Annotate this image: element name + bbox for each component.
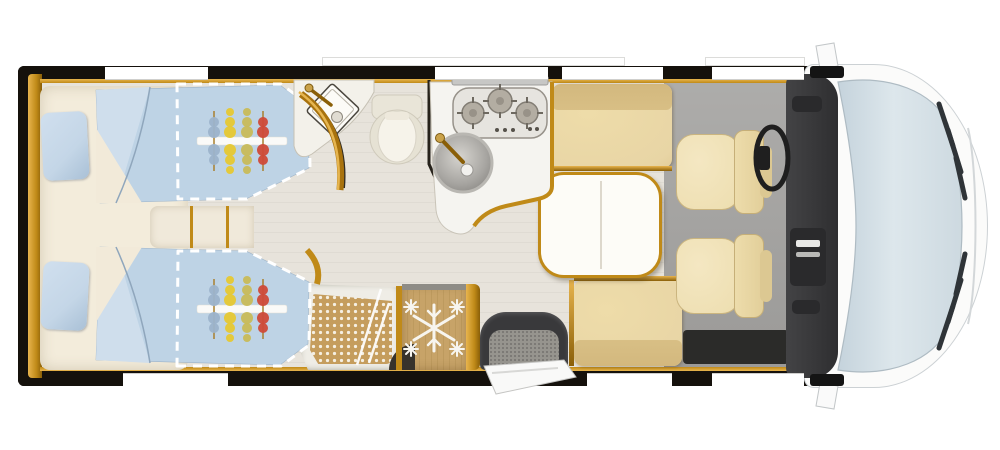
seat-cushion [676, 238, 740, 314]
bench-backrest [552, 84, 672, 110]
dinette-table [538, 172, 662, 278]
pillow-top-bed [40, 111, 89, 181]
console-slot [796, 240, 820, 247]
dash-vent [792, 96, 822, 112]
cab-storage-step [683, 330, 789, 364]
driver-seat [676, 130, 772, 214]
refrigerator-wood-panel [466, 284, 480, 370]
refrigerator-top-edge [402, 284, 468, 290]
pillow-bottom-bed [40, 261, 89, 331]
dash-console [790, 228, 826, 286]
seat-headrest [760, 146, 772, 198]
dashboard [786, 74, 838, 378]
table-leaf-divider [600, 181, 602, 269]
dinette-bench-rear [574, 280, 682, 366]
bench-wood-side [569, 280, 574, 366]
window [435, 67, 548, 80]
seat-cushion [676, 134, 740, 210]
roof-edge [322, 57, 625, 66]
refrigerator [402, 284, 468, 370]
center-steps [150, 206, 254, 248]
dinette-bench-front [552, 84, 672, 168]
entry-door-mat [489, 330, 559, 368]
window [562, 67, 663, 80]
motorhome-floorplan [0, 0, 1000, 450]
window [712, 67, 804, 80]
seat-headrest [760, 250, 772, 302]
dash-vent [792, 300, 820, 314]
step-edge [190, 206, 193, 248]
passenger-seat [676, 234, 772, 318]
bench-wood-base [552, 166, 672, 171]
console-slot [796, 252, 820, 257]
window [712, 373, 804, 386]
window [105, 67, 208, 80]
bench-backrest [574, 340, 682, 366]
window [123, 373, 228, 386]
roof-edge [705, 57, 805, 66]
window [587, 373, 672, 386]
shower-mosaic-floor [310, 294, 392, 364]
step-edge [226, 206, 229, 248]
